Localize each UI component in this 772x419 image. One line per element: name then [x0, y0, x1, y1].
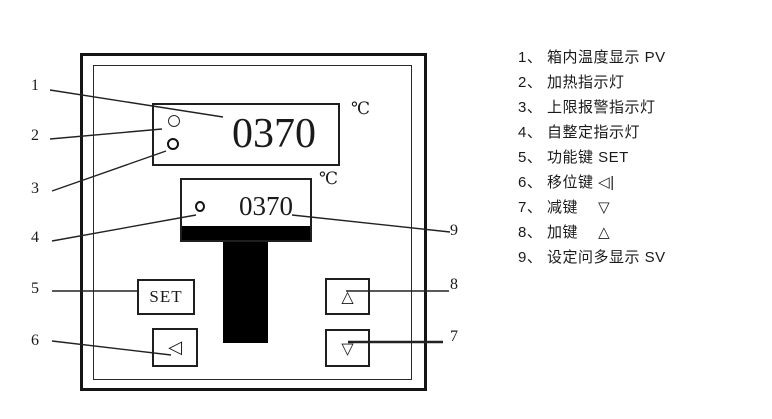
legend-item-6: 6、 移位键 ◁| [518, 170, 768, 195]
leader-line-2 [50, 129, 162, 139]
controller-panel-diagram: 0370 ℃ 0370 ℃ SET ◁ △ ▽ 1 2 [0, 0, 772, 419]
legend-item-9: 9、 设定问多显示 SV [518, 245, 768, 270]
callout-9: 9 [450, 223, 458, 239]
callout-4: 4 [31, 230, 39, 246]
legend-item-5: 5、 功能键 SET [518, 145, 768, 170]
legend-item-1: 1、 箱内温度显示 PV [518, 45, 768, 70]
legend-item-2: 2、 加热指示灯 [518, 70, 768, 95]
legend-item-3: 3、 上限报警指示灯 [518, 95, 768, 120]
callout-6: 6 [31, 333, 39, 349]
callout-5: 5 [31, 281, 39, 297]
leader-line-1 [50, 90, 223, 117]
leader-line-4 [52, 215, 196, 241]
legend-item-7: 7、 减键 ▽ [518, 195, 768, 220]
callout-1: 1 [31, 78, 39, 94]
leader-line-6 [52, 341, 171, 355]
leader-line-3 [52, 151, 166, 191]
legend: 1、 箱内温度显示 PV 2、 加热指示灯 3、 上限报警指示灯 4、 自整定指… [518, 45, 768, 270]
callout-7: 7 [450, 329, 458, 345]
leader-line-9 [292, 215, 450, 232]
callout-3: 3 [31, 181, 39, 197]
callout-8: 8 [450, 277, 458, 293]
callout-2: 2 [31, 128, 39, 144]
legend-item-4: 4、 自整定指示灯 [518, 120, 768, 145]
legend-item-8: 8、 加键 △ [518, 220, 768, 245]
